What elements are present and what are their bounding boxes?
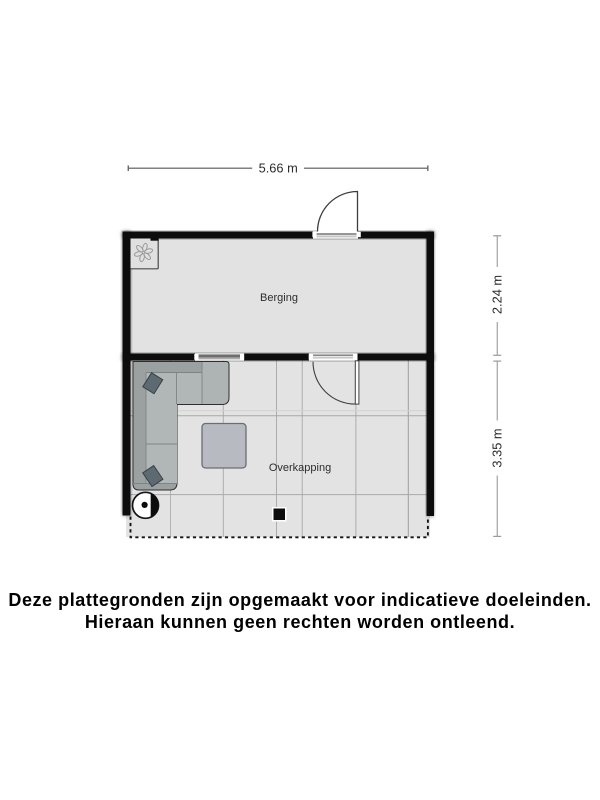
- svg-text:Berging: Berging: [260, 292, 298, 304]
- svg-text:2.24 m: 2.24 m: [490, 275, 505, 314]
- svg-text:3.35 m: 3.35 m: [490, 428, 505, 467]
- svg-text:Overkapping: Overkapping: [269, 462, 331, 474]
- svg-text:5.66 m: 5.66 m: [259, 161, 298, 176]
